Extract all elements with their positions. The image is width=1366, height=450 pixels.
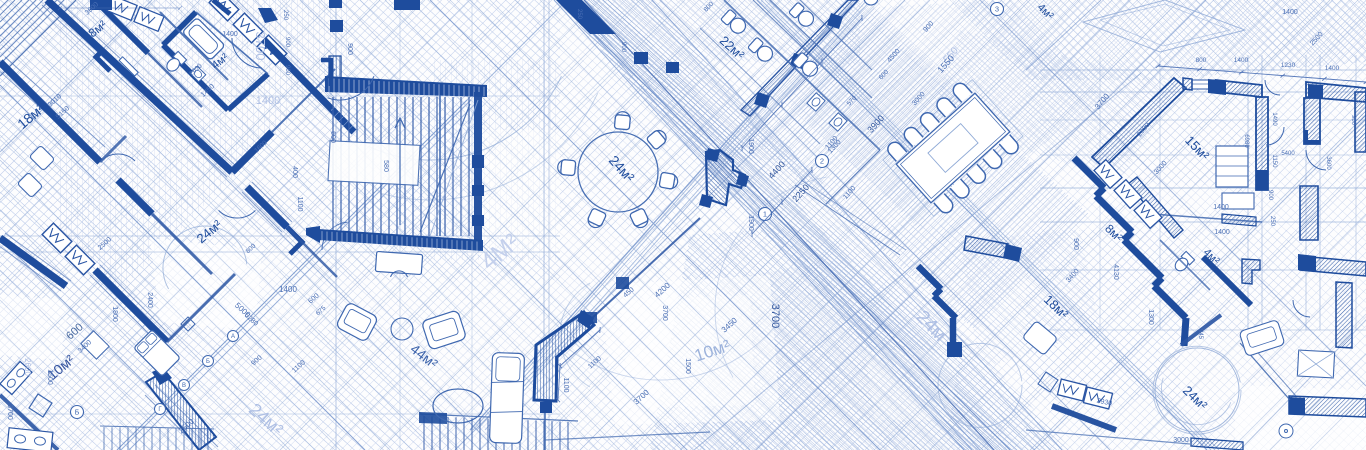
svg-text:900: 900 bbox=[620, 42, 626, 53]
svg-text:1100: 1100 bbox=[296, 196, 303, 211]
svg-text:400: 400 bbox=[291, 166, 298, 178]
svg-text:1400: 1400 bbox=[1234, 57, 1249, 64]
svg-text:1900: 1900 bbox=[747, 215, 754, 231]
svg-text:2400: 2400 bbox=[146, 292, 153, 308]
svg-text:1400: 1400 bbox=[1214, 229, 1230, 236]
svg-text:960: 960 bbox=[1350, 115, 1356, 126]
svg-text:1100: 1100 bbox=[562, 377, 569, 392]
svg-text:900: 900 bbox=[346, 43, 353, 55]
svg-text:2: 2 bbox=[820, 157, 824, 166]
svg-text:580: 580 bbox=[382, 160, 389, 172]
svg-text:1150: 1150 bbox=[1271, 155, 1277, 169]
svg-text:600: 600 bbox=[329, 131, 336, 143]
svg-text:945: 945 bbox=[1197, 329, 1203, 340]
svg-text:1500: 1500 bbox=[684, 358, 691, 374]
svg-text:1490: 1490 bbox=[1271, 112, 1277, 126]
svg-text:960: 960 bbox=[284, 65, 290, 76]
svg-text:900: 900 bbox=[1072, 238, 1079, 250]
svg-text:3: 3 bbox=[995, 5, 999, 14]
svg-text:1800: 1800 bbox=[111, 306, 118, 322]
svg-text:1400: 1400 bbox=[1282, 9, 1298, 16]
svg-text:250: 250 bbox=[282, 10, 288, 21]
svg-text:1400: 1400 bbox=[222, 31, 238, 38]
svg-text:3000: 3000 bbox=[1173, 437, 1189, 444]
svg-text:3700: 3700 bbox=[253, 32, 268, 61]
svg-text:3700: 3700 bbox=[769, 304, 781, 328]
svg-text:1400: 1400 bbox=[1213, 204, 1229, 211]
svg-text:250: 250 bbox=[1269, 216, 1275, 227]
svg-text:В: В bbox=[182, 383, 186, 389]
svg-text:800: 800 bbox=[1196, 57, 1207, 64]
svg-text:2600: 2600 bbox=[23, 358, 32, 376]
svg-text:1400: 1400 bbox=[1325, 65, 1340, 72]
svg-text:1: 1 bbox=[763, 210, 767, 219]
svg-text:1500: 1500 bbox=[46, 369, 53, 385]
svg-text:1900: 1900 bbox=[747, 138, 754, 154]
svg-text:А: А bbox=[231, 334, 235, 340]
svg-text:5400: 5400 bbox=[1281, 151, 1295, 157]
svg-text:900: 900 bbox=[1267, 190, 1273, 201]
svg-text:6980: 6980 bbox=[1243, 134, 1249, 148]
svg-text:Б: Б bbox=[75, 410, 80, 417]
svg-text:250: 250 bbox=[576, 9, 582, 20]
svg-text:Б: Б bbox=[206, 359, 210, 365]
svg-text:3700: 3700 bbox=[6, 404, 13, 420]
svg-text:3600: 3600 bbox=[1325, 156, 1331, 170]
svg-text:4130: 4130 bbox=[1112, 264, 1119, 280]
svg-text:1300: 1300 bbox=[1147, 309, 1154, 325]
svg-text:1230: 1230 bbox=[1281, 62, 1296, 69]
svg-text:900: 900 bbox=[284, 37, 290, 48]
svg-text:1400: 1400 bbox=[256, 95, 280, 107]
svg-text:1400: 1400 bbox=[279, 285, 297, 294]
svg-text:3700: 3700 bbox=[661, 305, 668, 321]
